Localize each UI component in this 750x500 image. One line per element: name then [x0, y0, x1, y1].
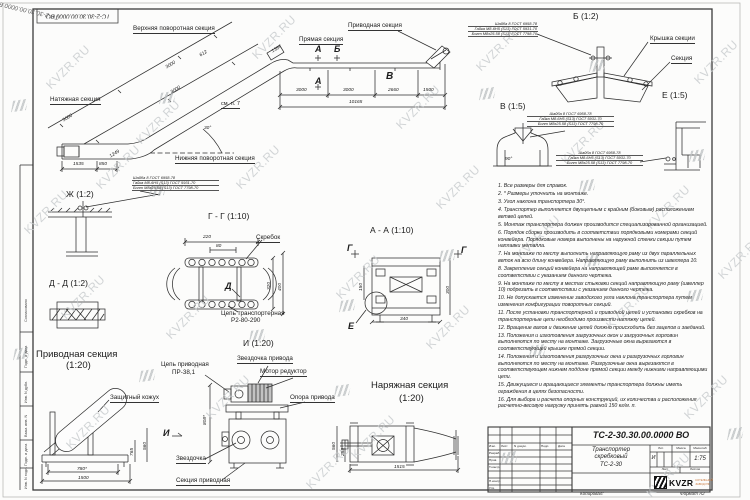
label-scraper: Скребок	[256, 235, 280, 243]
dim-400: 400	[278, 283, 283, 291]
detail-e-title: Е (1:5)	[662, 91, 688, 100]
part-name-line2: скребковый	[572, 454, 650, 460]
note: 8. Закрепление секций конвейера на напра…	[498, 266, 710, 279]
drawing-sheet: KVZR.RU KVZR.RU KVZR.RU KVZR.RU KVZR.RU …	[0, 0, 750, 500]
tension-section-title: Наряжная секция	[371, 381, 448, 391]
note: 7. На монтаже по месту выполнить направл…	[498, 251, 710, 264]
label-section: Секция	[671, 56, 692, 64]
label-lower-turn-section: Нижняя поворотная секция	[175, 156, 255, 164]
label-drive-chain: Цепь приводная	[161, 362, 209, 369]
note: 1. Все размеры для справок.	[498, 183, 710, 190]
strip-inv-dubl: Инв. N дубл.	[24, 381, 28, 403]
notes-list: 1. Все размеры для справок. 2. * Размеры…	[498, 183, 710, 411]
kvzr-logo: KVZR КОТЕЛЬНЫЙ ЗАВОД РФ	[654, 476, 713, 489]
kvzr-logo-watermark	[589, 59, 606, 72]
label-drive-support: Опора привода	[290, 395, 335, 403]
dim-90deg: 90°	[505, 157, 512, 162]
spec-bolt: Болт М8х25.58 (S13) ГОСТ 7798-70	[556, 161, 643, 166]
col-sign: Подп.	[541, 445, 549, 448]
mark-e-callout: Е	[348, 322, 354, 331]
detail-b-title: Б (1:2)	[573, 12, 598, 21]
kvzr-logo-text: KVZR	[669, 478, 693, 488]
scale-header: Масштаб	[690, 447, 710, 450]
row-razrab: Разраб.	[489, 452, 500, 455]
detail-zh-drawing	[48, 194, 160, 256]
mark-g-right: Г	[461, 246, 467, 255]
kvzr-logo-watermark	[479, 87, 496, 100]
spec-bolt: Болт М8х25.58 (S13) ГОСТ 7798-70	[468, 32, 538, 37]
col-izm: Изм.	[489, 445, 496, 448]
label-chain-model: Р2-80-290	[231, 318, 260, 325]
dim-320: 320	[267, 282, 272, 290]
section-mark-a-bottom: А	[315, 77, 322, 86]
strip-inv-podl: Инв. N подл.	[24, 467, 28, 489]
dim-560-drive: 560	[143, 442, 148, 450]
row-utv: Утв.	[489, 487, 495, 490]
strip-vzam-inv: Взам. инв. N	[24, 415, 28, 437]
strip-soglasovano: Согласовано	[24, 299, 28, 322]
bolt-spec-stack: Шайба 8 ГОСТ 6958-78 Гайка М8-6Н5 (S13) …	[527, 112, 614, 127]
kvzr-logo-watermark	[501, 451, 518, 464]
detail-v-title: В (1:5)	[500, 102, 526, 111]
label-protective-cover: Защитный кожух	[110, 395, 159, 403]
dim-850: 850	[99, 162, 107, 167]
dim-2660: 2660	[388, 88, 399, 93]
view-mark-v: В	[386, 72, 393, 83]
detail-v-drawing	[493, 123, 565, 166]
note: 13. Положения и изготовления загрузочных…	[498, 333, 710, 353]
dim-780: 780*	[77, 467, 87, 472]
dim-765: 765	[130, 448, 135, 456]
label-upper-turn-section: Верхняя поворотная секция	[133, 26, 215, 34]
mass-header: Масса	[672, 447, 690, 450]
drive-section-scale: (1:20)	[66, 361, 91, 371]
col-date: Дата	[558, 445, 565, 448]
row-nkontr: Н.контр.	[489, 480, 501, 483]
note: 15. Движущиеся и вращающиеся элементы тр…	[498, 382, 710, 395]
note: 6. Порядок сборки производить в соответс…	[498, 230, 710, 250]
bolt-spec-stack: Шайба 8 ГОСТ 6958-78 Гайка М8-6Н5 (S13) …	[132, 176, 219, 191]
row-tkontr: Т.контр.	[489, 466, 500, 469]
bolt-spec-stack: Шайба 8 ГОСТ 6958-78 Гайка М8-6Н5 (S13) …	[556, 151, 643, 166]
bolt-spec-stack: Шайба 8 ГОСТ 6958-78 Гайка М8-6Н5 (S13) …	[468, 22, 538, 37]
section-aa-title: А - А (1:10)	[370, 226, 413, 235]
note: 11. После установки транспортерной и при…	[498, 310, 710, 323]
spec-bolt: Болт М8х25.58 (S13) ГОСТ 7798-70	[527, 122, 614, 127]
note: 2. * Размеры уточнить на монтаже.	[498, 191, 710, 198]
detail-e-drawing	[640, 122, 706, 170]
dim-340: 340	[400, 317, 408, 322]
label-drive-section: Приводная секция	[348, 23, 402, 31]
col-list: Лист	[501, 445, 508, 448]
section-mark-d: Д	[225, 282, 232, 291]
tension-section-scale: (1:20)	[399, 394, 424, 404]
kvzr-logo-subtext: КОТЕЛЬНЫЙ ЗАВОД РФ	[695, 479, 713, 485]
copied-label: Копировал:	[580, 492, 604, 497]
section-mark-a-top: А	[315, 45, 322, 54]
logo-sub-line2: ЗАВОД РФ	[695, 482, 709, 486]
left-frame-strip	[20, 165, 33, 490]
kvzr-logo-watermark	[11, 99, 28, 112]
label-drive-sprocket: Звездочка привода	[237, 356, 293, 364]
lit-header: Лит.	[650, 447, 672, 450]
note: 5. Монтаж транспортера должен производит…	[498, 222, 710, 229]
note: 3. Угол наклона транспортера 30°.	[498, 199, 710, 206]
label-section-cover: Крышка секции	[650, 36, 695, 44]
sheet-header: Лист	[650, 468, 680, 471]
section-gg-drawing	[167, 238, 285, 316]
kvzr-logo-watermark	[139, 369, 156, 382]
dim-3000: 3000	[296, 88, 307, 93]
kvzr-logo-icon	[654, 476, 667, 489]
dim-3000: 3000	[343, 88, 354, 93]
label-sprocket: Звездочка	[176, 456, 206, 464]
section-gg-title: Г - Г (1:10)	[208, 212, 249, 221]
part-name-line3: ТС-2-30	[572, 462, 650, 468]
kvzr-logo-watermark	[439, 249, 456, 262]
dim-808: 808*	[203, 415, 208, 425]
section-mark-b: Б	[334, 45, 340, 54]
format-label: Формат А2	[680, 492, 705, 497]
note: 16. Для выбора и расчета опорных констру…	[498, 397, 710, 410]
strip-podp-data-1: Подп. и дата	[24, 346, 28, 368]
sheets-header: Листов	[680, 468, 710, 471]
label-see-note: см. п. 7	[221, 102, 240, 109]
dim-150: 150	[359, 283, 364, 291]
dim-80: 80	[216, 244, 221, 249]
mark-g-left: Г	[347, 244, 353, 253]
note: 9. На монтаже по месту в местах стыковки…	[498, 281, 710, 294]
label-drive-chain-model: ПР-38,1	[172, 370, 195, 377]
label-tension-section: Натяжная секция	[50, 97, 101, 105]
note: 4. Транспортер выполняется двухцепным с …	[498, 207, 710, 220]
kvzr-logo-watermark	[334, 384, 351, 397]
row-prov: Пров.	[489, 459, 497, 462]
mark-i: И	[163, 429, 169, 438]
view-i-title: И (1:20)	[243, 339, 274, 348]
dim-220: 220	[203, 235, 211, 240]
note: 10. Не допускается изменение заводского …	[498, 295, 710, 308]
kvzr-logo-watermark	[339, 299, 356, 312]
note: 12. Вращение валов и движение цепей долж…	[498, 325, 710, 332]
drive-section-title: Приводная секция	[36, 350, 117, 360]
label-drive-section-part: Секция приводная	[176, 478, 230, 486]
col-doc: N докум.	[514, 445, 527, 448]
dim-1500: 1500	[423, 88, 434, 93]
dim-1515: 1515	[394, 465, 405, 470]
label-motor-reducer: Мотор редуктор	[260, 369, 307, 377]
dim-1500-drive: 1500	[78, 476, 89, 481]
spec-bolt: Болт М8х25.58 (S13) ГОСТ 7798-70	[132, 186, 219, 191]
doc-number: ТС-2-30.30.00.0000 ВО	[572, 431, 710, 440]
lit-value: И	[650, 456, 657, 462]
general-view	[48, 22, 450, 172]
part-name-line1: Транспортер	[572, 447, 650, 453]
section-dd-title: Д - Д (1:2)	[49, 279, 88, 288]
detail-zh-title: Ж (1:2)	[66, 190, 94, 199]
strip-podp-data-2: Подп. и дата	[24, 444, 28, 466]
kvzr-logo-watermark	[689, 149, 706, 162]
kvzr-logo-watermark	[727, 427, 744, 440]
dim-angle-30: 30°	[204, 126, 211, 131]
dim-300: 300	[446, 286, 451, 294]
dim-258: 258	[341, 448, 346, 456]
dim-560-tension: 560	[332, 442, 337, 450]
scale-value: 1:75	[690, 456, 710, 462]
dim-10165: 10165	[349, 100, 362, 105]
note: 14. Положения и изготовления разгрузочны…	[498, 354, 710, 380]
dim-1535: 1535	[73, 162, 84, 167]
